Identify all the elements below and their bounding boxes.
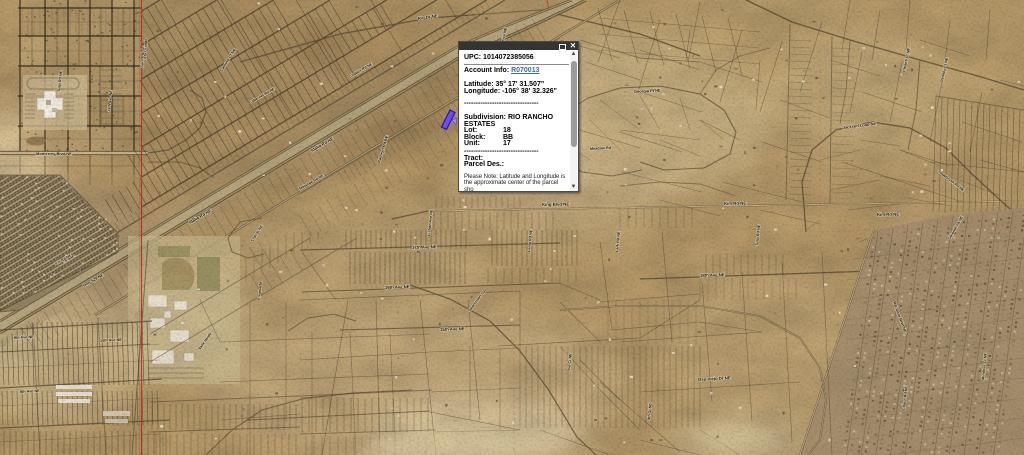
svg-text:17th Ave NE: 17th Ave NE [412,244,437,250]
svg-text:15th Ave NE: 15th Ave NE [440,326,465,332]
svg-text:Kim Rd NE: Kim Rd NE [724,201,746,206]
svg-text:18th Ave NE: 18th Ave NE [700,272,725,278]
svg-text:16th Ave NE: 16th Ave NE [385,284,410,290]
svg-text:Kim Rd NE: Kim Rd NE [877,212,899,217]
svg-text:Monterrey Blvd NE: Monterrey Blvd NE [36,151,72,156]
svg-text:King Blvd NE: King Blvd NE [542,202,569,207]
